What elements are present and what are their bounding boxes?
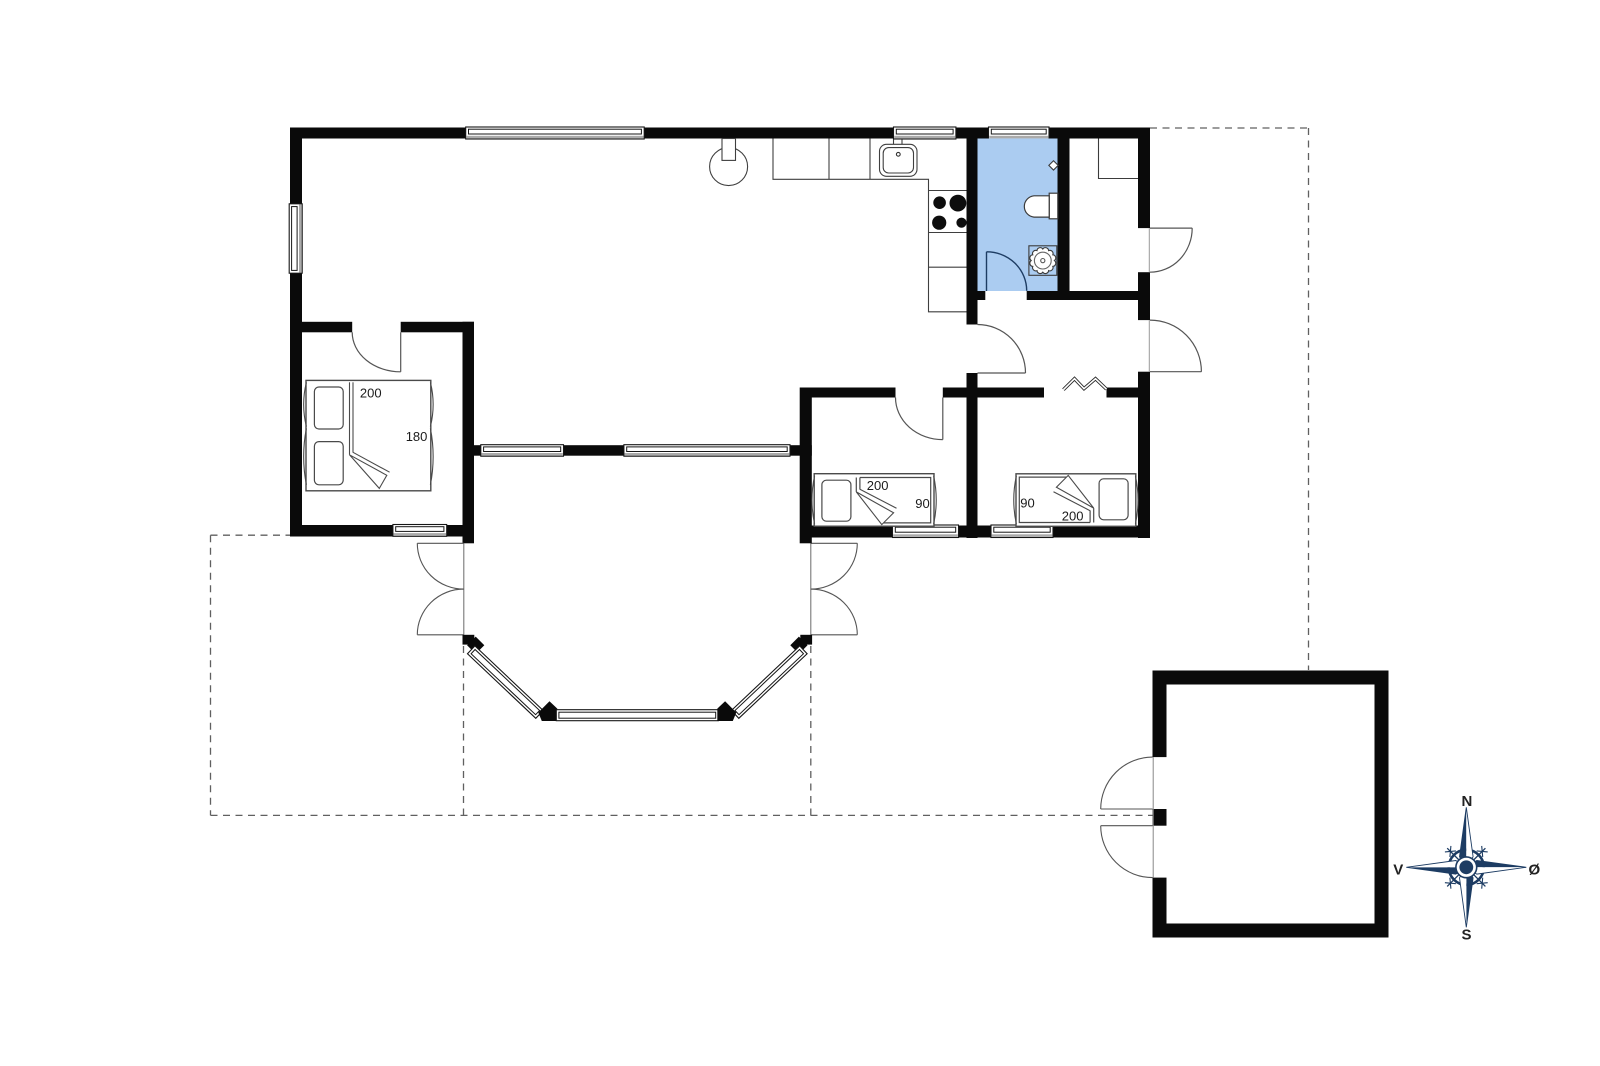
svg-text:90: 90 xyxy=(1020,496,1034,511)
svg-text:180: 180 xyxy=(406,429,428,444)
svg-text:N: N xyxy=(1461,793,1472,810)
svg-text:S: S xyxy=(1461,927,1471,944)
svg-text:200: 200 xyxy=(867,478,889,493)
svg-text:200: 200 xyxy=(1062,509,1084,524)
svg-text:90: 90 xyxy=(915,496,929,511)
svg-text:Ø: Ø xyxy=(1528,862,1540,879)
svg-text:200: 200 xyxy=(360,386,382,401)
svg-text:V: V xyxy=(1393,862,1403,879)
